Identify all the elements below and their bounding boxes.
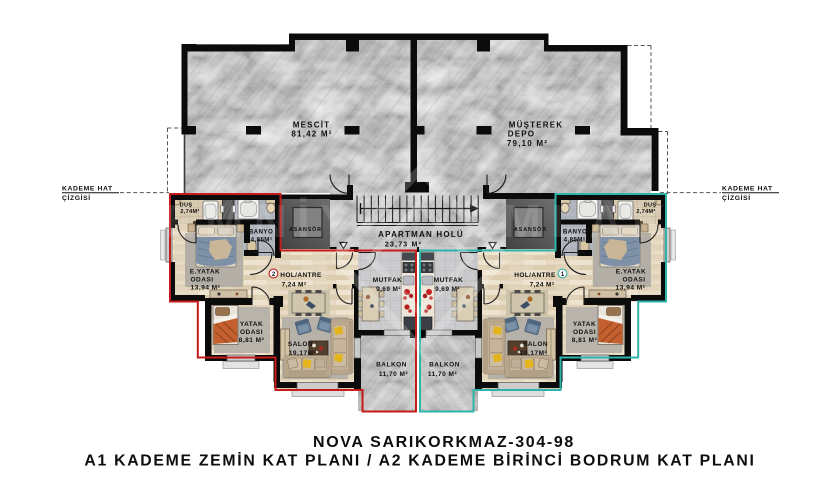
svg-text:EMNİYET EMLAK: EMNİYET EMLAK (165, 195, 676, 247)
svg-text:KADEME HAT: KADEME HAT (62, 186, 113, 193)
svg-text:MUTFAK: MUTFAK (373, 277, 402, 284)
svg-text:SALON: SALON (523, 341, 548, 348)
svg-text:81,42 M²: 81,42 M² (291, 130, 332, 139)
svg-text:HOL/ANTRE: HOL/ANTRE (514, 272, 556, 279)
svg-text:8,81 M²: 8,81 M² (572, 337, 598, 344)
svg-text:E.YATAK: E.YATAK (616, 269, 646, 276)
svg-text:DUŞ: DUŞ (644, 203, 657, 209)
svg-text:ODASI: ODASI (240, 329, 263, 336)
svg-text:BALKON: BALKON (429, 362, 460, 369)
svg-text:2,74M²: 2,74M² (636, 208, 655, 215)
svg-text:ODASI: ODASI (622, 277, 645, 284)
svg-text:YATAK: YATAK (573, 321, 596, 328)
svg-text:APARTMAN HOLÜ: APARTMAN HOLÜ (378, 230, 464, 239)
svg-text:7,24 M²: 7,24 M² (530, 282, 555, 289)
svg-text:BALKON: BALKON (376, 362, 407, 369)
svg-text:HOL/ANTRE: HOL/ANTRE (280, 272, 322, 279)
svg-text:7,24 M²: 7,24 M² (282, 282, 307, 289)
svg-text:ÇİZGİSİ: ÇİZGİSİ (722, 194, 751, 202)
svg-text:11,70 M²: 11,70 M² (428, 371, 458, 378)
svg-text:9,69 M²: 9,69 M² (376, 286, 401, 293)
svg-text:YATAK: YATAK (240, 321, 263, 328)
svg-text:2,74M²: 2,74M² (180, 208, 199, 215)
svg-text:13,94 M²: 13,94 M² (191, 285, 221, 292)
svg-text:8,81 M²: 8,81 M² (239, 337, 265, 344)
svg-text:11,70 M²: 11,70 M² (379, 371, 409, 378)
svg-text:DUŞ: DUŞ (180, 203, 193, 209)
svg-text:BANYO: BANYO (563, 229, 587, 236)
svg-text:MESCİT: MESCİT (293, 121, 330, 130)
svg-text:SALON: SALON (288, 341, 313, 348)
svg-text:MÜŞTEREK: MÜŞTEREK (509, 121, 564, 130)
svg-text:4,85M²: 4,85M² (564, 237, 586, 244)
svg-text:ÇİZGİSİ: ÇİZGİSİ (62, 194, 91, 202)
svg-text:4,85M²: 4,85M² (251, 237, 273, 244)
svg-text:KADEME HAT: KADEME HAT (722, 186, 773, 193)
svg-text:ASANSÖR: ASANSÖR (289, 226, 322, 233)
svg-text:BANYO: BANYO (249, 229, 273, 236)
svg-text:79,10 M²: 79,10 M² (507, 139, 548, 148)
svg-text:23,73 M²: 23,73 M² (385, 242, 422, 249)
svg-text:E.YATAK: E.YATAK (190, 269, 220, 276)
svg-text:19,17M²: 19,17M² (289, 350, 317, 357)
svg-text:9,69 M²: 9,69 M² (435, 286, 460, 293)
svg-text:19,17M²: 19,17M² (520, 350, 548, 357)
svg-text:MUTFAK: MUTFAK (434, 277, 463, 284)
svg-text:ODASI: ODASI (573, 329, 596, 336)
svg-text:ASANSÖR: ASANSÖR (514, 226, 547, 233)
svg-text:NOVA SARIKORKMAZ-304-98: NOVA SARIKORKMAZ-304-98 (313, 434, 575, 451)
svg-text:13,94 M²: 13,94 M² (616, 285, 646, 292)
svg-text:A1 KADEME ZEMİN KAT PLANI / A2: A1 KADEME ZEMİN KAT PLANI / A2 KADEME Bİ… (84, 452, 755, 470)
svg-text:DEPO: DEPO (508, 130, 535, 139)
svg-text:ODASI: ODASI (190, 277, 213, 284)
